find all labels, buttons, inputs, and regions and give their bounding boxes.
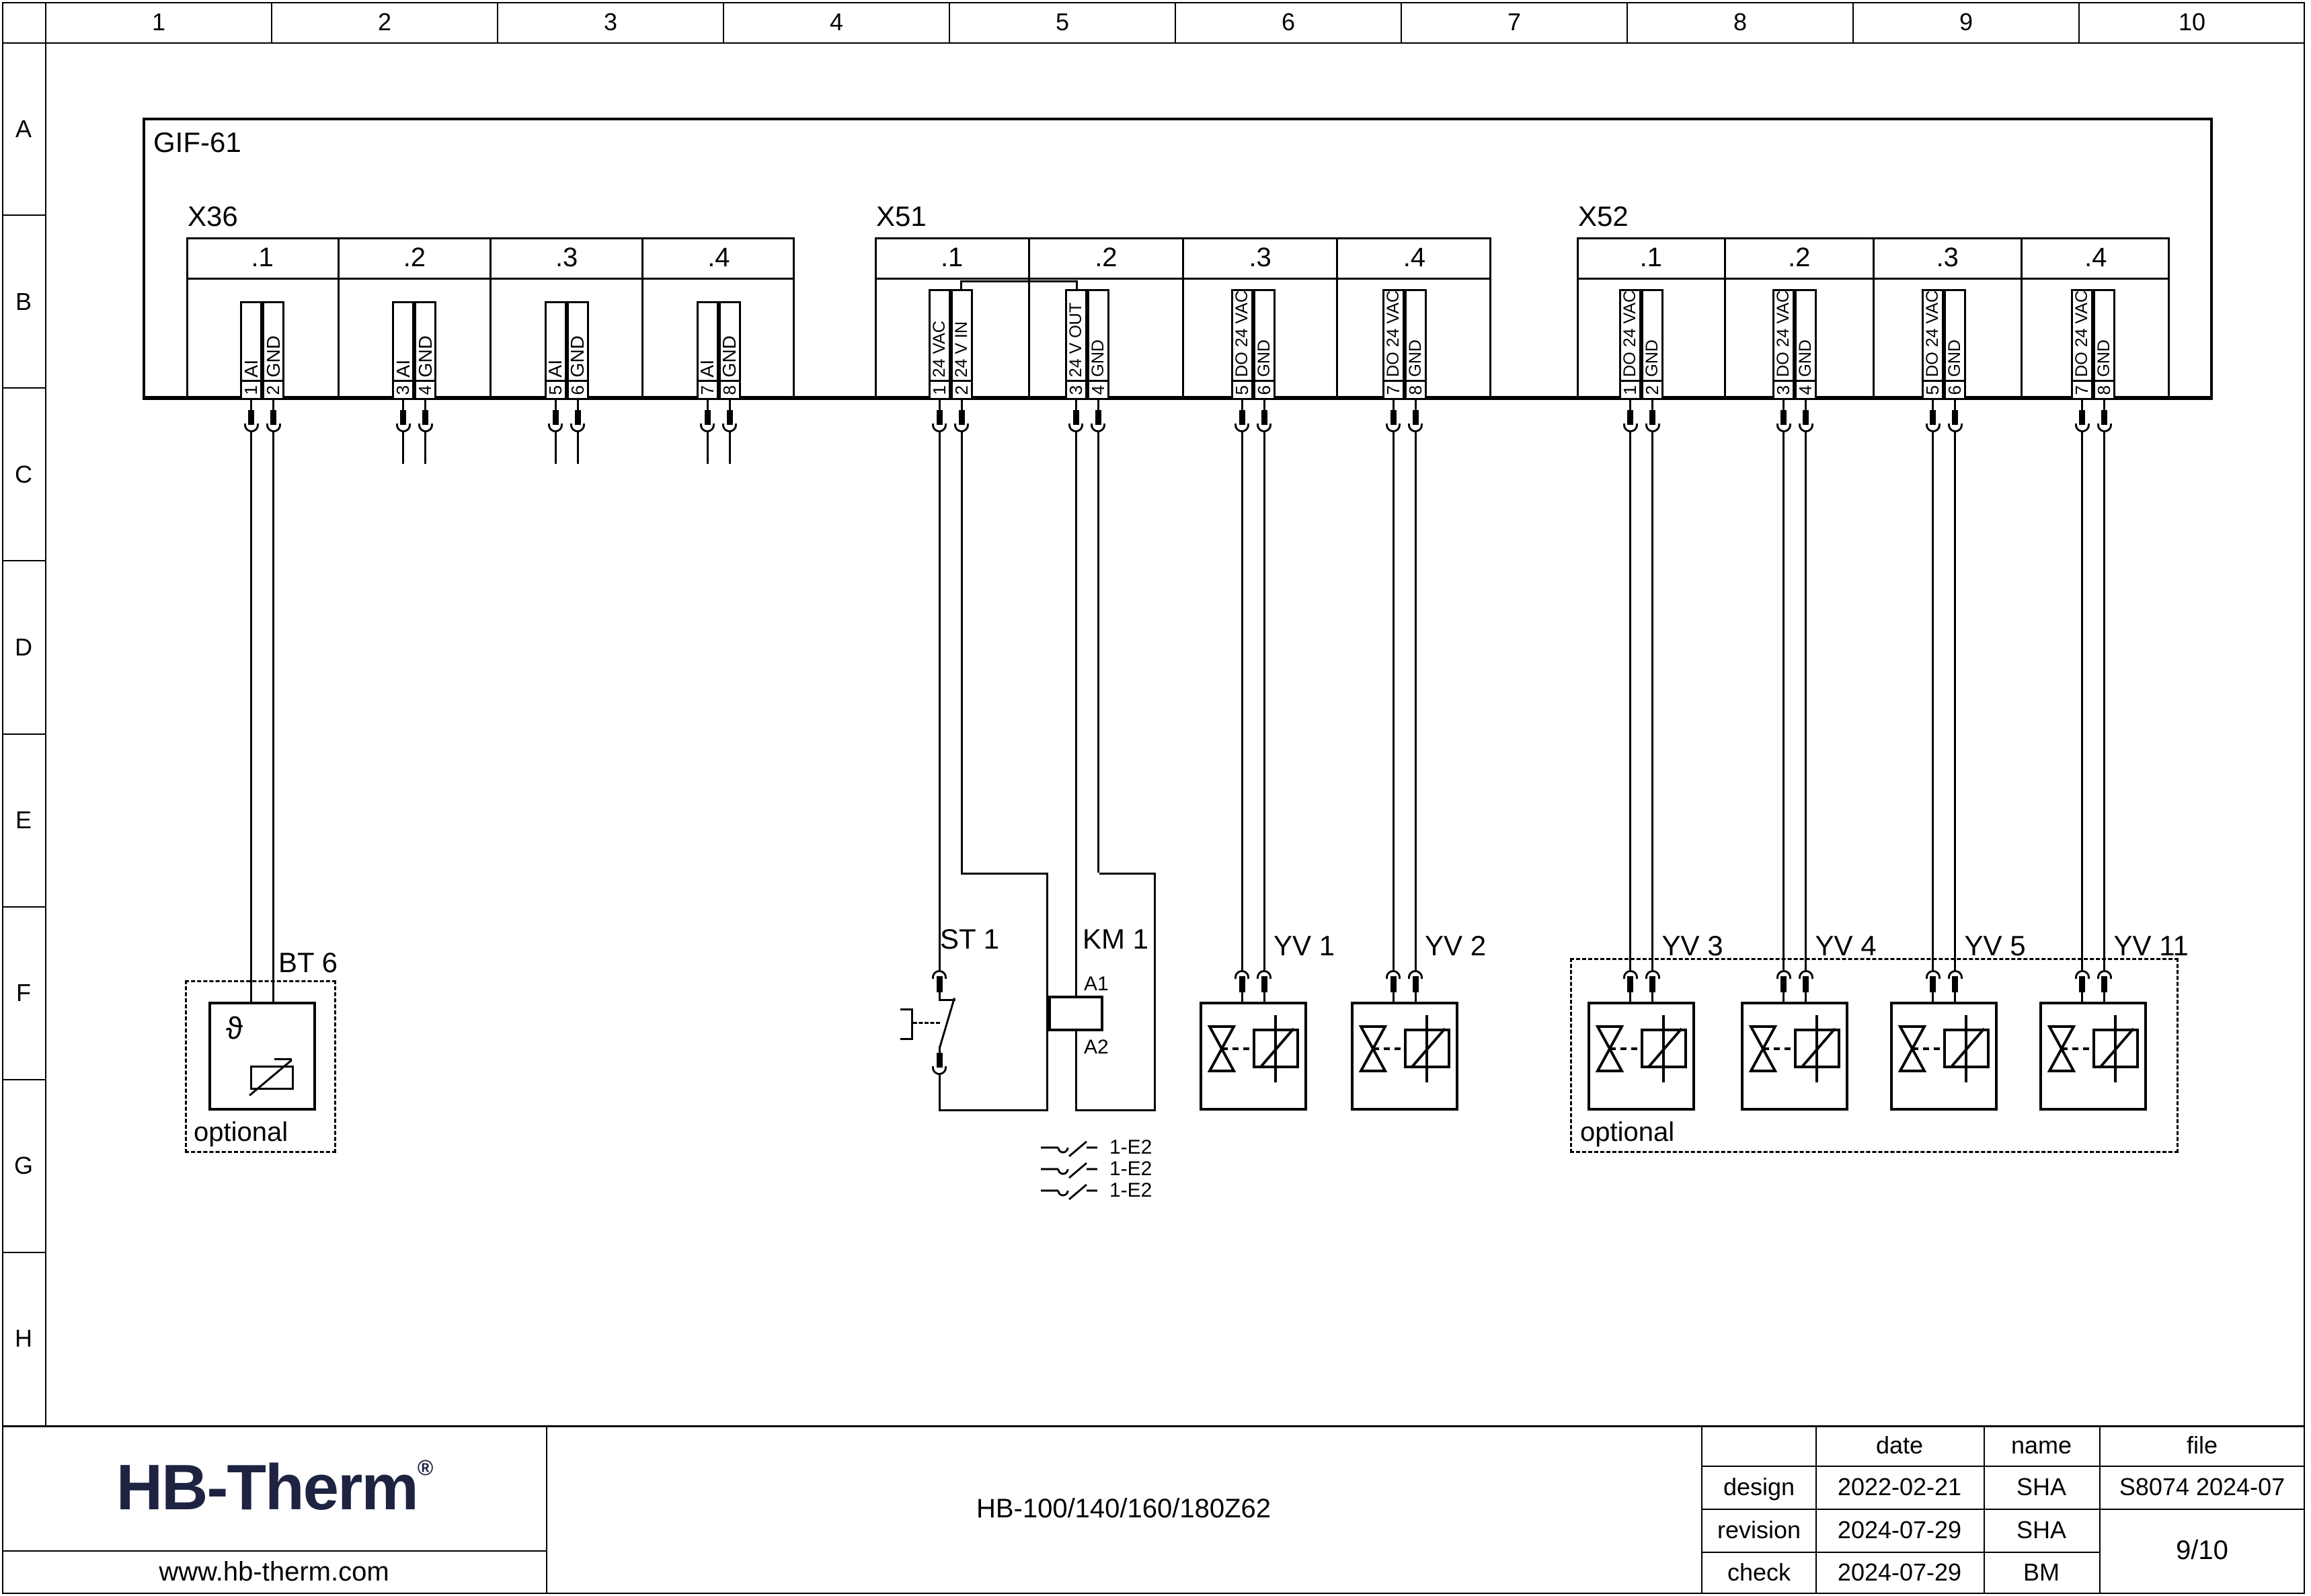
pin-signal-label: AI [393, 357, 414, 380]
ruler-column-label: 1 [46, 2, 272, 42]
pin-signal-box: DO 24 VAC [1382, 289, 1405, 382]
pin-signal-box: 24 V IN [951, 289, 973, 382]
pin-signal-box: GND [567, 301, 589, 382]
pin-number-box: 1 [240, 380, 262, 400]
pin-signal-box: DO 24 VAC [1772, 289, 1795, 382]
pin-number: 6 [567, 385, 588, 395]
sheet-number: 9/10 [2099, 1509, 2305, 1593]
titleblock-row-name: SHA [1984, 1509, 2099, 1552]
pin-number: 7 [1383, 385, 1404, 395]
ruler-column-label: 9 [1853, 2, 2079, 42]
wire [577, 431, 579, 464]
pin-number: 7 [2072, 385, 2092, 395]
plug-pin-icon [1649, 976, 1655, 992]
pin-signal-box: DO 24 VAC [1231, 289, 1253, 382]
wire [961, 431, 963, 873]
bt6-theta-symbol: ϑ [226, 1010, 243, 1046]
connector-sub-label: .4 [2022, 237, 2170, 278]
wire [1075, 431, 1077, 997]
ruler-tick [2, 1252, 45, 1253]
pin-signal-box: GND [1087, 289, 1109, 382]
wire [1805, 431, 1807, 970]
pin-signal-box: AI [240, 301, 262, 382]
pin-signal-box: GND [1944, 289, 1966, 382]
valve-label: YV 5 [1965, 930, 2026, 962]
valve-label: YV 3 [1662, 930, 1723, 962]
plug-pin-icon [1952, 410, 1958, 425]
pin-number-box: 2 [951, 380, 973, 400]
pin-number: 5 [1232, 385, 1253, 395]
wire [272, 431, 274, 1002]
connector-sub-label: .3 [1183, 237, 1337, 278]
wire [1393, 431, 1395, 970]
ruler-column-label: 4 [723, 2, 949, 42]
contact-sheet-ref: 1-E2 [1109, 1158, 1152, 1181]
bt6-label: BT 6 [278, 947, 338, 979]
ruler-tick [271, 2, 272, 42]
wire [2103, 431, 2105, 970]
st1-switch-blade [938, 998, 955, 1049]
ruler-column-label: 8 [1627, 2, 1853, 42]
km1-wire [1099, 873, 1156, 875]
titleblock-header-name: name [1984, 1425, 2099, 1466]
plug-pin-icon [1261, 410, 1267, 425]
connector-sub-label: .2 [338, 237, 490, 278]
connector-sub-label: .3 [1873, 237, 2022, 278]
plug-pin-icon [1803, 976, 1809, 992]
bt6-thermistor-tick [274, 1058, 292, 1060]
plug-pin-icon [1627, 976, 1633, 992]
wire [1651, 431, 1653, 970]
titleblock-row-name: BM [1984, 1552, 2099, 1593]
ruler-column-label: 5 [949, 2, 1175, 42]
plug-pin-icon [553, 410, 559, 425]
solenoid-valve-icon [2039, 1002, 2147, 1111]
plug-pin-icon [1780, 976, 1787, 992]
pin-number: 6 [1945, 385, 1965, 395]
pin-number-box: 4 [1087, 380, 1109, 400]
pin-signal-label: DO 24 VAC [2072, 288, 2092, 380]
st1-actuator-link [913, 1022, 940, 1024]
titleblock-row-date: 2022-02-21 [1815, 1466, 1984, 1509]
st1-plunger-bar [911, 1008, 913, 1040]
pin-number-box: 7 [1382, 380, 1405, 400]
pin-signal-box: AI [545, 301, 567, 382]
plug-pin-icon [705, 410, 711, 425]
ruler-tick [2, 1079, 45, 1080]
ruler-row-label: C [2, 388, 45, 561]
st1-label: ST 1 [940, 923, 999, 955]
pin-number: 2 [1642, 385, 1663, 395]
pin-number: 8 [2094, 385, 2115, 395]
pin-number: 3 [1773, 385, 1794, 395]
ruler-row-label: E [2, 734, 45, 907]
wire [2081, 431, 2083, 970]
frame-right [2304, 2, 2305, 1594]
pin-signal-box: DO 24 VAC [2071, 289, 2093, 382]
pin-signal-box: GND [262, 301, 284, 382]
st1-top-pin-icon [937, 976, 943, 992]
plug-pin-icon [1073, 410, 1079, 425]
ruler-tick [2, 906, 45, 908]
wire [1097, 431, 1099, 873]
valve-label: YV 11 [2114, 930, 2189, 962]
pin-signal-label: DO 24 VAC [1232, 288, 1252, 380]
bt6-optional-label: optional [194, 1117, 288, 1148]
pin-number: 4 [1795, 385, 1816, 395]
pin-number-box: 2 [1641, 380, 1663, 400]
pin-signal-label: GND [1406, 337, 1425, 380]
pin-number: 1 [241, 385, 262, 395]
pin-signal-label: GND [1255, 337, 1274, 380]
km1-terminal-a1: A1 [1084, 973, 1109, 996]
ruler-tick [2, 387, 45, 389]
valve-label: YV 2 [1425, 930, 1486, 962]
pin-number-box: 7 [2071, 380, 2093, 400]
pin-signal-label: DO 24 VAC [1384, 288, 1403, 380]
pin-number: 6 [1254, 385, 1275, 395]
connector-sub-label: .1 [1577, 237, 1725, 278]
plug-pin-icon [1095, 410, 1101, 425]
pin-number-box: 5 [1922, 380, 1944, 400]
pin-number-box: 7 [697, 380, 719, 400]
wire [1241, 431, 1243, 970]
pin-signal-label: GND [2094, 337, 2114, 380]
pin-signal-label: GND [719, 333, 740, 380]
pin-signal-box: 24 V OUT [1065, 289, 1087, 382]
st1-wire [939, 1074, 941, 1111]
plug-pin-icon [1390, 410, 1397, 425]
registered-trademark-icon: ® [418, 1455, 432, 1480]
company-logo: HB-Therm® [2, 1425, 546, 1550]
pin-signal-label: GND [263, 333, 284, 380]
gif61-module-label: GIF-61 [153, 126, 241, 159]
valve-label: YV 1 [1274, 930, 1335, 962]
solenoid-valve-icon [1351, 1002, 1458, 1111]
solenoid-valve-icon [1588, 1002, 1695, 1111]
ruler-row-label: D [2, 561, 45, 733]
wire [1415, 431, 1417, 970]
plug-pin-icon [1413, 976, 1419, 992]
plug-pin-icon [1649, 410, 1655, 425]
pin-number: 4 [415, 385, 436, 395]
pin-signal-label: GND [1796, 337, 1815, 380]
km1-coil-box [1048, 996, 1103, 1031]
plug-pin-icon [400, 410, 406, 425]
titleblock-row-label: check [1702, 1552, 1815, 1593]
pin-signal-label: 24 V OUT [1066, 300, 1086, 380]
solenoid-valve-icon [1741, 1002, 1848, 1111]
pin-number: 3 [1066, 385, 1087, 395]
pin-number-box: 5 [545, 380, 567, 400]
contact-sheet-ref: 1-E2 [1109, 1136, 1152, 1159]
pin-number: 4 [1088, 385, 1109, 395]
pin-signal-box: AI [392, 301, 414, 382]
ruler-row-label: F [2, 907, 45, 1080]
pin-signal-label: GND [1945, 337, 1965, 380]
plug-pin-icon [727, 410, 733, 425]
bt6-sensor-box [208, 1002, 316, 1111]
ruler-row-label: B [2, 215, 45, 388]
titleblock-row-label: revision [1702, 1509, 1815, 1552]
frame-bottom [2, 1593, 2305, 1594]
contact-sheet-ref: 1-E2 [1109, 1179, 1152, 1202]
ruler-row-label: G [2, 1080, 45, 1252]
ruler-column-label: 10 [2079, 2, 2305, 42]
pin-number-box: 2 [262, 380, 284, 400]
wire [729, 431, 731, 464]
titleblock-row-date: 2024-07-29 [1815, 1509, 1984, 1552]
st1-plunger-tick-bottom [900, 1038, 912, 1040]
pin-signal-label: DO 24 VAC [1774, 288, 1793, 380]
connector-label: X52 [1578, 200, 1629, 233]
ruler-column-label: 7 [1401, 2, 1627, 42]
pin-signal-box: 24 VAC [929, 289, 951, 382]
connector-label: X51 [876, 200, 927, 233]
wire [424, 431, 426, 464]
connector-sub-label: .4 [643, 237, 795, 278]
st1-wire [939, 1109, 1048, 1111]
pin-number-box: 6 [567, 380, 589, 400]
plug-pin-icon [1261, 976, 1267, 992]
pin-number: 2 [263, 385, 284, 395]
connector-label: X36 [188, 200, 238, 233]
ruler-tick [2, 214, 45, 216]
valve-optional-label: optional [1580, 1117, 1674, 1148]
st1-wire [961, 873, 1048, 875]
pin-number-box: 6 [1944, 380, 1966, 400]
ruler-tick [1852, 2, 1854, 42]
km1-wire [1075, 1030, 1077, 1111]
pin-number-box: 6 [1253, 380, 1276, 400]
plug-pin-icon [2101, 976, 2107, 992]
pin-signal-box: GND [414, 301, 436, 382]
ruler-tick [497, 2, 498, 42]
wire [1954, 431, 1956, 970]
wire [250, 431, 252, 1002]
plug-pin-icon [1413, 410, 1419, 425]
pin-number: 5 [1922, 385, 1943, 395]
wire [939, 431, 941, 970]
pin-signal-label: AI [697, 357, 718, 380]
pin-signal-box: GND [1405, 289, 1427, 382]
pin-signal-label: GND [1089, 337, 1108, 380]
pin-signal-box: GND [1641, 289, 1663, 382]
pin-number-box: 8 [719, 380, 741, 400]
wire [1263, 431, 1265, 970]
titleblock-header-date: date [1815, 1425, 1984, 1466]
plug-pin-icon [1390, 976, 1397, 992]
pin-number: 5 [545, 385, 566, 395]
wire [1783, 431, 1785, 970]
ruler-tick [1175, 2, 1176, 42]
pin-number-box: 4 [1795, 380, 1817, 400]
valve-label: YV 4 [1815, 930, 1877, 962]
plug-pin-icon [1780, 410, 1787, 425]
wire [1629, 431, 1631, 970]
pin-signal-box: GND [1253, 289, 1276, 382]
connector-sub-label: .2 [1029, 237, 1183, 278]
connector-sub-label: .4 [1337, 237, 1491, 278]
ruler-tick [949, 2, 950, 42]
wire [402, 431, 404, 464]
ruler-row-label: H [2, 1252, 45, 1425]
pin-signal-label: GND [567, 333, 588, 380]
plug-pin-icon [1239, 976, 1245, 992]
ruler-tick [2, 733, 45, 735]
pin-number: 8 [1405, 385, 1426, 395]
plug-pin-icon [1239, 410, 1245, 425]
ruler-column-label: 3 [498, 2, 723, 42]
pin-number-box: 1 [1619, 380, 1641, 400]
ruler-tick [2078, 2, 2080, 42]
wire [555, 431, 557, 464]
plug-pin-icon [1803, 410, 1809, 425]
wire [707, 431, 709, 464]
pin-number-box: 3 [1065, 380, 1087, 400]
connector-sub-label: .1 [875, 237, 1029, 278]
plug-pin-icon [575, 410, 581, 425]
pin-signal-label: 24 V IN [952, 319, 972, 380]
pin-number: 3 [393, 385, 414, 395]
connector-sub-label: .3 [491, 237, 643, 278]
plug-pin-icon [270, 410, 276, 425]
connector-sub-label: .1 [186, 237, 338, 278]
km1-label: KM 1 [1083, 923, 1148, 955]
wire [1932, 431, 1934, 970]
km1-aux-contact-icon [1041, 1177, 1097, 1204]
pin-signal-box: GND [719, 301, 741, 382]
ruler-left-separator [45, 42, 46, 1425]
ruler-tick [2, 560, 45, 561]
km1-wire [1075, 1109, 1156, 1111]
ruler-tick [1627, 2, 1628, 42]
pin-signal-box: DO 24 VAC [1619, 289, 1641, 382]
plug-pin-icon [422, 410, 428, 425]
titleblock-row-name: SHA [1984, 1466, 2099, 1509]
plug-pin-icon [2101, 410, 2107, 425]
pin-number-box: 8 [1405, 380, 1427, 400]
pin-signal-box: AI [697, 301, 719, 382]
schematic-page: GIF-61 BT 6 ϑ optional ST 1 KM 1 A1 A2 o… [0, 0, 2311, 1596]
ruler-column-label: 6 [1175, 2, 1401, 42]
km1-wire [1154, 873, 1156, 1111]
pin-signal-label: DO 24 VAC [1620, 288, 1640, 380]
plug-pin-icon [1627, 410, 1633, 425]
pin-number-box: 3 [392, 380, 414, 400]
titleblock-header-file: file [2099, 1425, 2305, 1466]
drawing-title: HB-100/140/160/180Z62 [546, 1425, 1701, 1593]
st1-wire [1046, 873, 1048, 1111]
plug-pin-icon [1930, 976, 1936, 992]
ruler-column-label: 2 [272, 2, 498, 42]
pin-signal-label: GND [1643, 337, 1662, 380]
pin-signal-box: GND [2093, 289, 2115, 382]
solenoid-valve-icon [1200, 1002, 1307, 1111]
ruler-tick [1401, 2, 1402, 42]
pin-number-box: 1 [929, 380, 951, 400]
ruler-tick [723, 2, 724, 42]
ruler-tick [45, 2, 46, 42]
company-logo-text: HB-Therm [116, 1451, 418, 1525]
pin-number: 7 [697, 385, 718, 395]
titleblock-row-label: design [1702, 1466, 1815, 1509]
pin-number: 8 [719, 385, 740, 395]
pin-number: 2 [951, 385, 972, 395]
st1-plunger-tick-top [900, 1008, 912, 1010]
pin-signal-label: AI [545, 357, 566, 380]
pin-signal-label: DO 24 VAC [1923, 288, 1943, 380]
solenoid-valve-icon [1890, 1002, 1998, 1111]
plug-pin-icon [248, 410, 254, 425]
company-website: www.hb-therm.com [2, 1552, 546, 1593]
plug-pin-icon [2079, 410, 2085, 425]
pin-number-box: 3 [1772, 380, 1795, 400]
pin-signal-box: DO 24 VAC [1922, 289, 1944, 382]
pin-signal-label: GND [415, 333, 436, 380]
pin-number-box: 4 [414, 380, 436, 400]
pin-number: 1 [1620, 385, 1641, 395]
pin-signal-label: AI [241, 357, 262, 380]
connector-sub-label: .2 [1725, 237, 1874, 278]
pin-signal-box: GND [1795, 289, 1817, 382]
plug-pin-icon [2079, 976, 2085, 992]
titleblock-row-date: 2024-07-29 [1815, 1552, 1984, 1593]
plug-pin-icon [1930, 410, 1936, 425]
plug-pin-icon [959, 410, 965, 425]
pin-number-box: 5 [1231, 380, 1253, 400]
plug-pin-icon [937, 410, 943, 425]
ruler-row-label: A [2, 42, 45, 215]
ruler-top-separator [2, 42, 2305, 44]
pin-number: 1 [929, 385, 950, 395]
km1-terminal-a2: A2 [1084, 1036, 1109, 1059]
st1-bottom-pin-icon [937, 1053, 943, 1068]
pin-signal-label: 24 VAC [930, 318, 949, 380]
pin-number-box: 8 [2093, 380, 2115, 400]
plug-pin-icon [1952, 976, 1958, 992]
titleblock-file-value: S8074 2024-07 [2099, 1466, 2305, 1509]
